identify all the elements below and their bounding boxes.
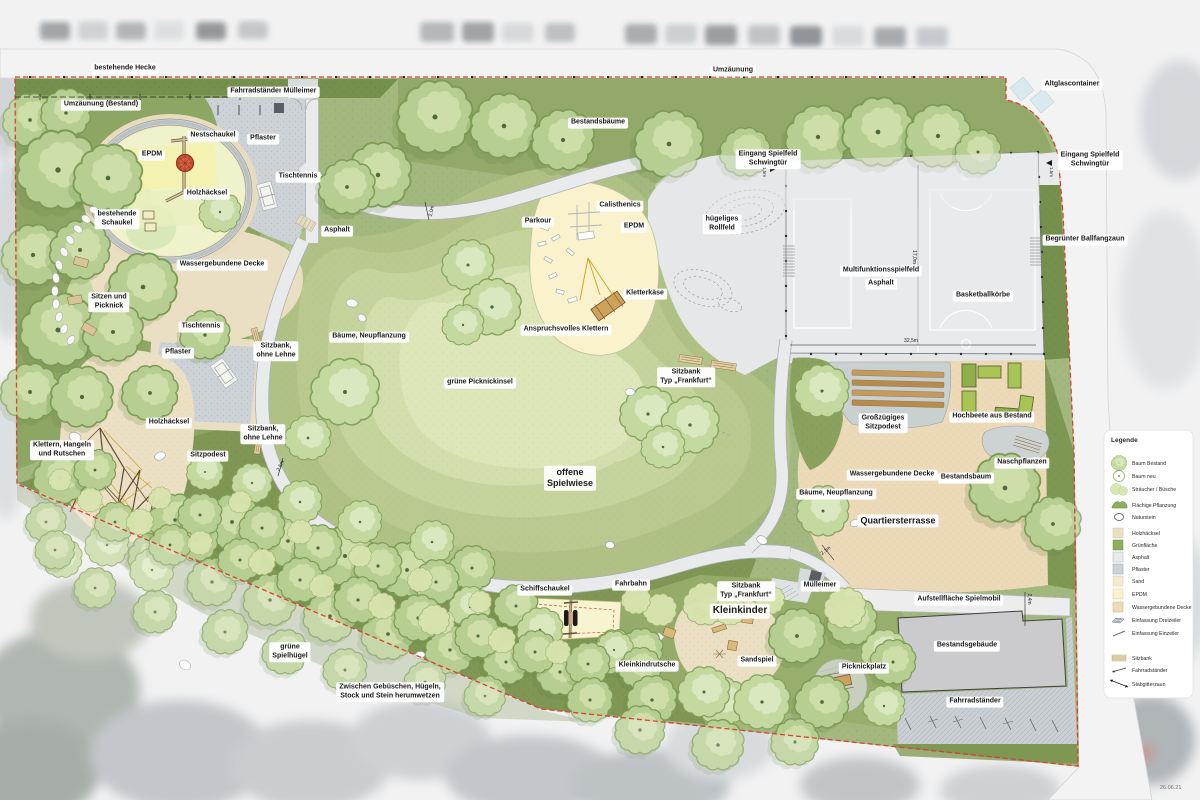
svg-text:Wassergebundene Decke: Wassergebundene Decke	[1132, 605, 1192, 611]
svg-text:Einfassung Einzeiler: Einfassung Einzeiler	[1132, 631, 1179, 637]
svg-text:Sand: Sand	[1132, 579, 1144, 585]
svg-text:Holzhäcksel: Holzhäcksel	[1132, 531, 1160, 537]
svg-text:Baum Bestand: Baum Bestand	[1132, 461, 1166, 467]
svg-text:Flächige Pflanzung: Flächige Pflanzung	[1132, 503, 1176, 509]
svg-text:Legende: Legende	[1111, 437, 1138, 444]
svg-text:Stabgitterzaun: Stabgitterzaun	[1132, 682, 1166, 688]
svg-text:Sträucher / Büsche: Sträucher / Büsche	[1132, 487, 1176, 493]
svg-text:Baum neu: Baum neu	[1132, 474, 1156, 480]
svg-text:26.06.21: 26.06.21	[1160, 785, 1181, 791]
svg-text:Grünfläche: Grünfläche	[1132, 543, 1157, 549]
svg-text:Fahrradständer: Fahrradständer	[1132, 668, 1168, 674]
svg-text:Einfassung Dreizeiler: Einfassung Dreizeiler	[1132, 618, 1181, 624]
svg-text:EPDM: EPDM	[1132, 592, 1147, 598]
svg-text:Naturstein: Naturstein	[1132, 515, 1156, 521]
svg-text:Pflaster: Pflaster	[1132, 567, 1150, 573]
svg-text:Sitzbank: Sitzbank	[1132, 656, 1152, 662]
svg-text:Asphalt: Asphalt	[1132, 555, 1150, 561]
